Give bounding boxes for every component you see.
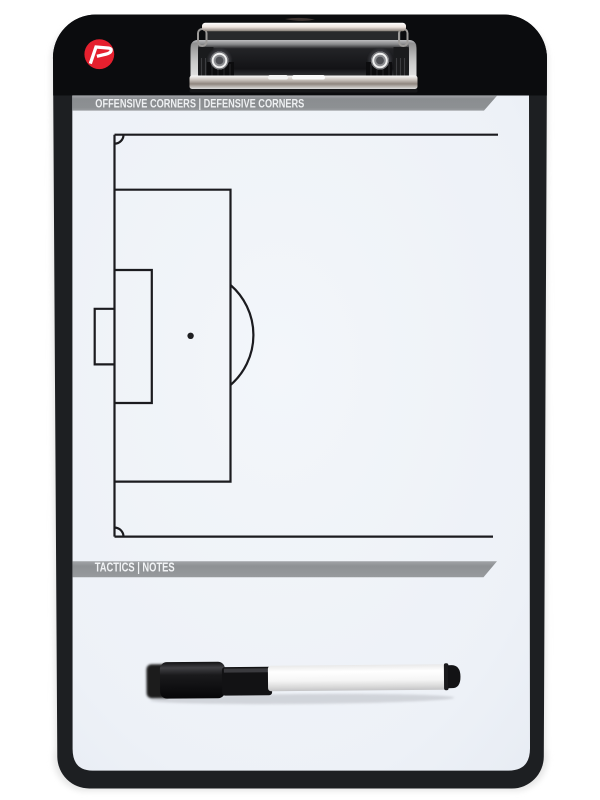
svg-text:OFFENSIVE CORNERS | DEFENSIVE: OFFENSIVE CORNERS | DEFENSIVE CORNERS xyxy=(95,98,304,110)
svg-text:TACTICS | NOTES: TACTICS | NOTES xyxy=(95,561,175,575)
